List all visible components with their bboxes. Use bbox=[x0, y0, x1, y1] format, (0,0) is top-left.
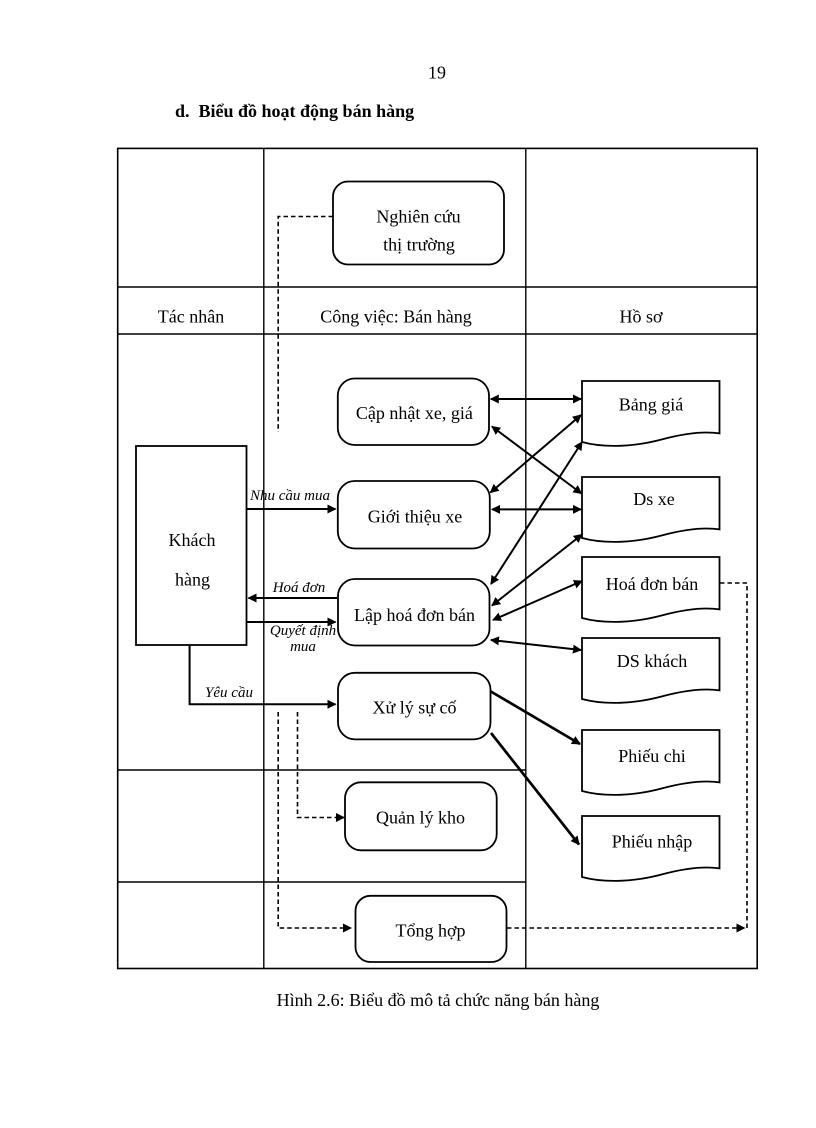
svg-text:Xử lý sự cố: Xử lý sự cố bbox=[372, 698, 456, 718]
svg-text:Công việc: Bán hàng: Công việc: Bán hàng bbox=[320, 307, 471, 327]
svg-text:Ds xe: Ds xe bbox=[633, 489, 675, 509]
svg-text:Quyết định: Quyết định bbox=[270, 623, 336, 639]
svg-text:Quản lý kho: Quản lý kho bbox=[376, 808, 465, 828]
svg-text:Cập nhật xe, giá: Cập nhật xe, giá bbox=[356, 403, 473, 423]
svg-text:Phiếu nhập: Phiếu nhập bbox=[612, 832, 693, 852]
svg-text:Lập hoá đơn bán: Lập hoá đơn bán bbox=[354, 605, 475, 625]
svg-text:d. Biểu đồ hoạt động bán hàng: d. Biểu đồ hoạt động bán hàng bbox=[175, 101, 414, 121]
svg-text:thị trường: thị trường bbox=[383, 235, 455, 255]
svg-text:DS khách: DS khách bbox=[617, 651, 688, 671]
svg-text:Hoá đơn bán: Hoá đơn bán bbox=[606, 574, 699, 594]
svg-text:Nghiên cứu: Nghiên cứu bbox=[376, 207, 460, 227]
svg-text:Phiếu chi: Phiếu chi bbox=[618, 746, 686, 766]
svg-text:Tác nhân: Tác nhân bbox=[158, 307, 224, 327]
svg-text:Hồ sơ: Hồ sơ bbox=[619, 307, 663, 327]
svg-text:Giới thiệu xe: Giới thiệu xe bbox=[368, 507, 463, 527]
svg-text:Yêu cầu: Yêu cầu bbox=[205, 685, 253, 701]
svg-text:Nhu cầu mua: Nhu cầu mua bbox=[249, 488, 330, 504]
svg-text:Bảng giá: Bảng giá bbox=[619, 395, 684, 415]
svg-text:Khách: Khách bbox=[169, 530, 216, 550]
svg-text:mua: mua bbox=[290, 639, 316, 655]
svg-text:Tổng hợp: Tổng hợp bbox=[395, 921, 465, 941]
svg-text:Hoá đơn: Hoá đơn bbox=[272, 580, 326, 596]
svg-text:hàng: hàng bbox=[175, 570, 210, 590]
svg-text:19: 19 bbox=[428, 63, 446, 83]
svg-text:Hình 2.6: Biểu đồ mô tả chức n: Hình 2.6: Biểu đồ mô tả chức năng bán hà… bbox=[277, 990, 600, 1010]
